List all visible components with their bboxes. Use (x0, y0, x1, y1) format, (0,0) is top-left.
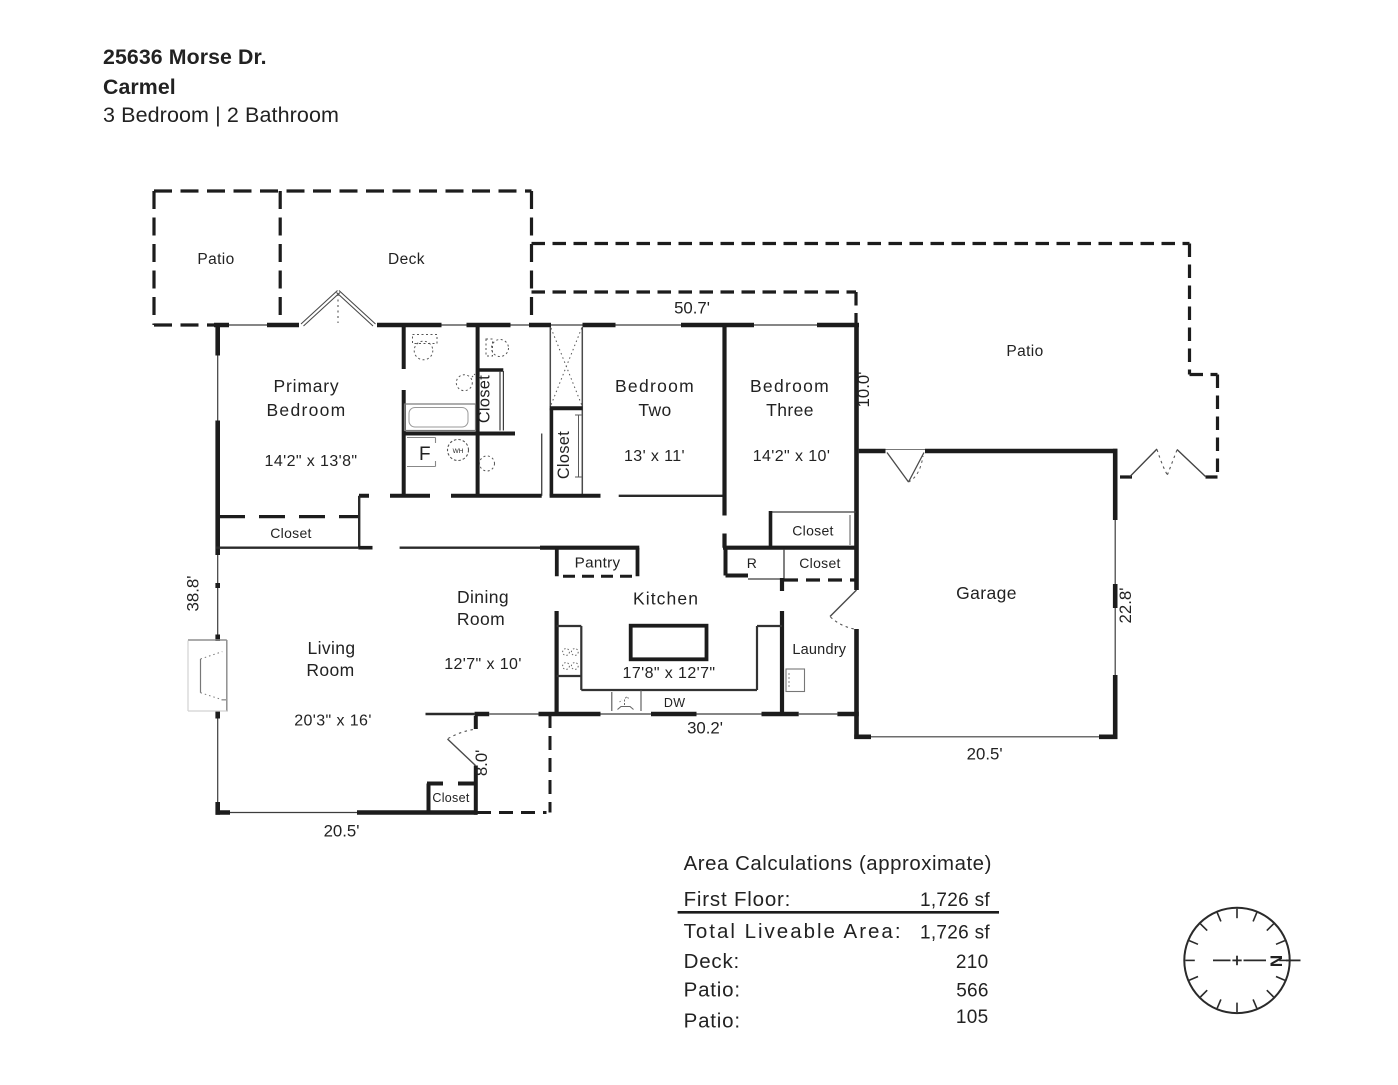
svg-text:210: 210 (956, 952, 989, 973)
svg-text:Closet: Closet (792, 523, 833, 539)
svg-text:20'3" x 16': 20'3" x 16' (294, 713, 372, 730)
svg-text:Closet: Closet (555, 431, 573, 479)
svg-text:Living: Living (307, 638, 355, 658)
svg-text:Room: Room (306, 660, 354, 680)
svg-text:20.5': 20.5' (324, 822, 360, 841)
svg-text:Closet: Closet (799, 555, 840, 571)
svg-text:14'2" x 10': 14'2" x 10' (753, 448, 831, 465)
svg-text:Patio:: Patio: (684, 1010, 741, 1033)
svg-text:Bedroom: Bedroom (266, 400, 346, 420)
svg-text:Deck: Deck (388, 251, 425, 268)
svg-text:Patio: Patio (197, 251, 234, 268)
svg-text:Laundry: Laundry (792, 642, 846, 658)
svg-text:Kitchen: Kitchen (633, 589, 699, 609)
svg-text:Three: Three (766, 400, 814, 420)
svg-text:Carmel: Carmel (103, 75, 176, 99)
svg-text:Deck:: Deck: (684, 950, 740, 973)
svg-text:105: 105 (956, 1007, 989, 1028)
svg-text:566: 566 (956, 981, 989, 1002)
svg-text:25636 Morse Dr.: 25636 Morse Dr. (103, 45, 267, 69)
svg-text:R: R (747, 555, 757, 571)
svg-text:8.0': 8.0' (472, 750, 491, 777)
svg-text:Room: Room (457, 609, 505, 629)
svg-text:50.7': 50.7' (674, 299, 710, 318)
svg-text:WH: WH (453, 448, 464, 455)
svg-text:17'8" x 12'7": 17'8" x 12'7" (623, 665, 716, 682)
svg-text:Bedroom: Bedroom (750, 376, 830, 396)
svg-text:14'2" x 13'8": 14'2" x 13'8" (265, 453, 358, 470)
svg-text:38.8': 38.8' (184, 576, 203, 612)
svg-text:12'7" x 10': 12'7" x 10' (444, 656, 522, 673)
svg-text:13' x 11': 13' x 11' (624, 448, 685, 465)
svg-text:Closet: Closet (432, 791, 469, 805)
svg-text:First Floor:: First Floor: (684, 888, 792, 911)
svg-text:Area Calculations (approximate: Area Calculations (approximate) (684, 853, 992, 875)
svg-text:22.8': 22.8' (1116, 588, 1135, 624)
svg-text:Bedroom: Bedroom (615, 376, 695, 396)
svg-text:1,726 sf: 1,726 sf (920, 890, 990, 911)
svg-text:20.5': 20.5' (967, 745, 1003, 764)
svg-text:N: N (1266, 955, 1285, 967)
svg-text:1,726 sf: 1,726 sf (920, 923, 990, 944)
svg-text:10.0': 10.0' (854, 372, 873, 408)
svg-text:30.2': 30.2' (687, 719, 723, 738)
svg-text:Dining: Dining (457, 587, 509, 607)
svg-text:Closet: Closet (476, 375, 494, 423)
svg-text:Patio:: Patio: (684, 979, 741, 1002)
svg-text:Primary: Primary (274, 376, 340, 396)
svg-text:Garage: Garage (956, 583, 1017, 603)
svg-text:Closet: Closet (270, 525, 311, 541)
svg-text:Patio: Patio (1006, 343, 1043, 360)
svg-text:Total Liveable Area:: Total Liveable Area: (684, 920, 903, 943)
svg-text:Two: Two (638, 400, 671, 420)
svg-text:Pantry: Pantry (575, 555, 621, 572)
svg-text:DW: DW (664, 696, 685, 710)
svg-text:3 Bedroom | 2 Bathroom: 3 Bedroom | 2 Bathroom (103, 103, 339, 127)
svg-text:F: F (419, 444, 431, 465)
